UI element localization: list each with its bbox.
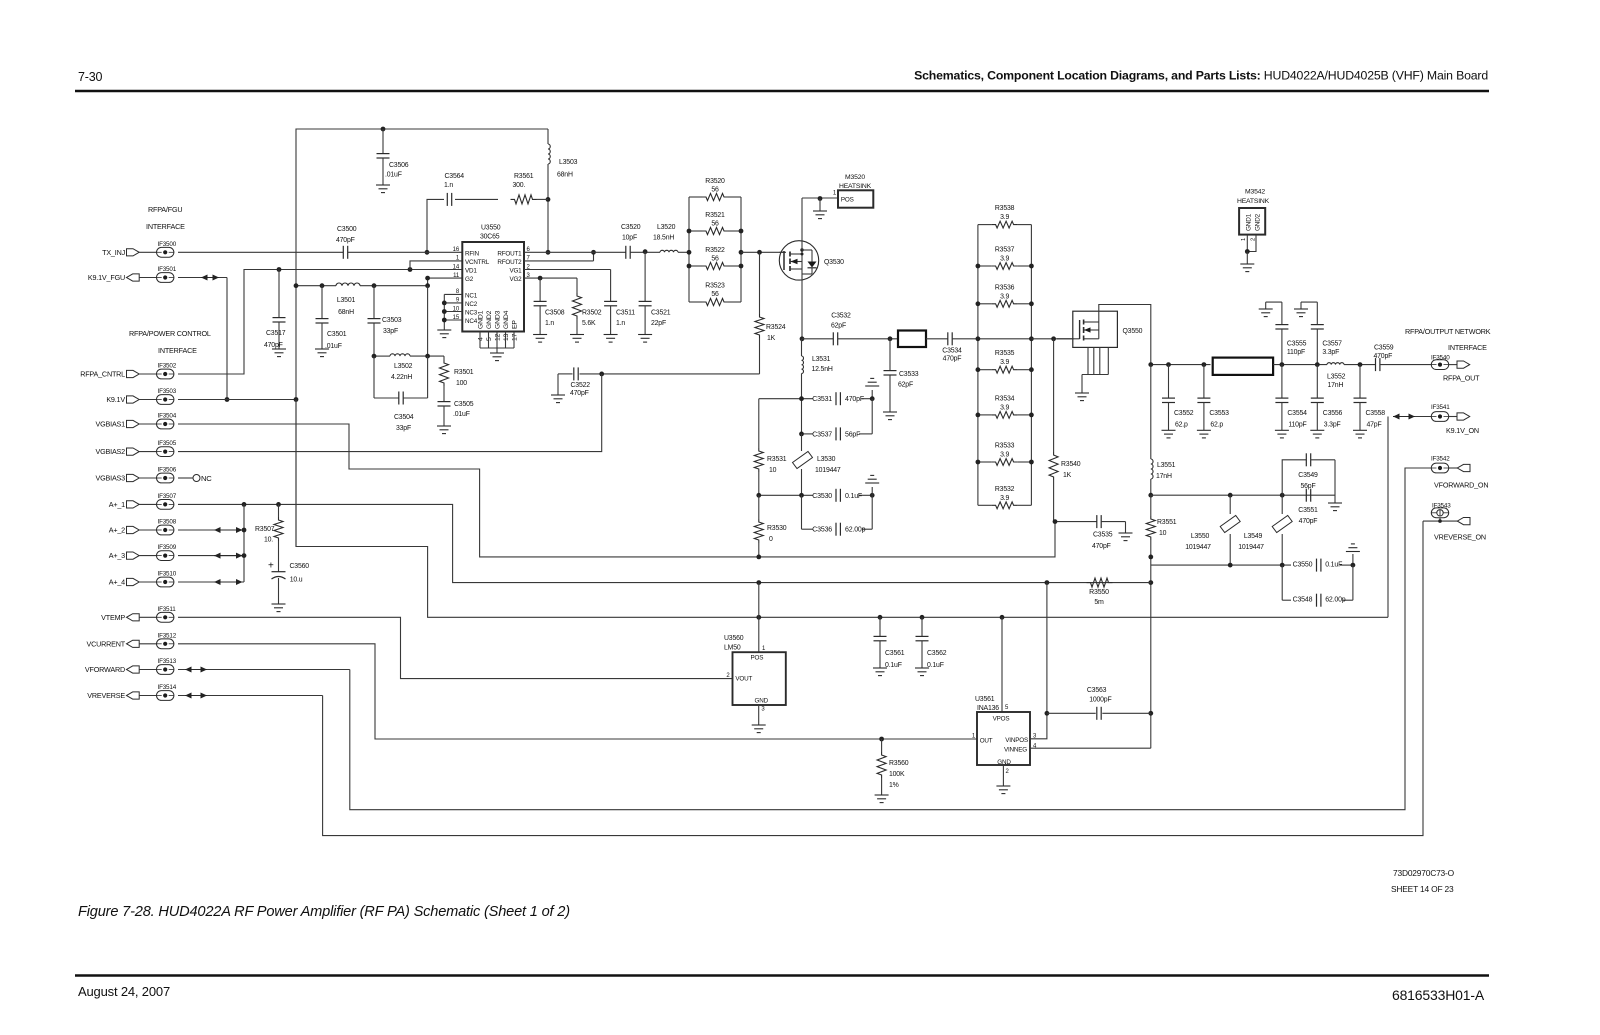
svg-text:10pF: 10pF [622,235,637,242]
svg-text:1K: 1K [767,335,776,342]
svg-text:.01uF: .01uF [453,411,470,418]
svg-text:11: 11 [453,273,460,279]
svg-text:GND2: GND2 [486,310,493,329]
svg-text:L3552: L3552 [1327,374,1346,381]
svg-text:R3540: R3540 [1061,461,1081,468]
svg-text:C3562: C3562 [927,650,947,657]
svg-text:0.1uF: 0.1uF [845,493,862,500]
svg-text:3.9: 3.9 [1000,293,1009,300]
svg-text:470pF: 470pF [264,342,283,349]
svg-text:OUT: OUT [980,738,993,745]
svg-text:1019447: 1019447 [1238,544,1264,551]
svg-text:RFIN: RFIN [465,250,480,257]
svg-text:R3532: R3532 [995,486,1015,493]
svg-text:C3564: C3564 [445,173,465,180]
svg-text:C3557: C3557 [1322,341,1342,348]
svg-text:VREVERSE_ON: VREVERSE_ON [1434,533,1486,542]
svg-text:22pF: 22pF [651,320,666,327]
svg-text:G2: G2 [465,276,474,283]
svg-text:U3550: U3550 [481,225,501,232]
svg-text:IF3502: IF3502 [158,363,177,370]
svg-text:0: 0 [769,536,773,543]
svg-text:17nH: 17nH [1328,382,1344,389]
svg-text:C3561: C3561 [885,650,905,657]
svg-text:VINNEG: VINNEG [1004,747,1027,754]
svg-text:R3523: R3523 [705,283,725,290]
svg-text:C3552: C3552 [1174,410,1194,417]
svg-text:C3503: C3503 [382,317,402,324]
svg-text:L3520: L3520 [657,224,676,231]
svg-text:INTERFACE: INTERFACE [146,222,185,231]
svg-text:10: 10 [1159,530,1167,537]
svg-text:L3503: L3503 [559,159,578,166]
svg-text:R3537: R3537 [995,247,1015,254]
svg-text:R3520: R3520 [705,178,725,185]
svg-text:C3560: C3560 [290,563,310,570]
svg-text:C3534: C3534 [942,348,962,355]
svg-text:7-30: 7-30 [78,70,103,84]
svg-text:1: 1 [1241,238,1247,241]
svg-text:Q3550: Q3550 [1123,328,1143,335]
svg-text:VREVERSE: VREVERSE [87,691,125,700]
svg-text:C3520: C3520 [621,224,641,231]
svg-text:GND: GND [997,759,1011,766]
svg-text:C3536: C3536 [812,527,832,534]
svg-text:C3531: C3531 [812,396,832,403]
svg-text:EP: EP [512,320,519,329]
svg-text:1019447: 1019447 [1185,544,1211,551]
svg-text:IF3510: IF3510 [158,571,177,578]
svg-text:RFPA_CNTRL: RFPA_CNTRL [80,370,125,379]
svg-text:R3507: R3507 [255,526,275,533]
svg-text:IF3509: IF3509 [158,544,177,551]
svg-text:NC1: NC1 [465,292,478,299]
svg-text:RFPA/OUTPUT NETWORK: RFPA/OUTPUT NETWORK [1405,327,1491,336]
svg-text:3.9: 3.9 [1000,495,1009,502]
svg-text:470pF: 470pF [845,396,864,403]
svg-text:R3551: R3551 [1157,519,1177,526]
svg-text:C3535: C3535 [1093,532,1113,539]
svg-text:R3522: R3522 [705,247,725,254]
svg-text:C3563: C3563 [1087,687,1107,694]
svg-text:C3558: C3558 [1366,410,1386,417]
svg-text:L3530: L3530 [817,456,836,463]
svg-text:0.1uF: 0.1uF [885,662,902,669]
svg-text:VD1: VD1 [465,268,477,275]
svg-text:IF3543: IF3543 [1432,503,1451,510]
svg-text:C3500: C3500 [337,226,357,233]
svg-text:NC: NC [201,474,212,483]
svg-text:IF3511: IF3511 [158,606,177,613]
svg-text:62.00p: 62.00p [845,527,866,534]
svg-text:R3501: R3501 [454,369,474,376]
svg-text:3.9: 3.9 [1000,452,1009,459]
svg-text:110pF: 110pF [1287,349,1305,356]
svg-text:68nH: 68nH [557,171,573,178]
svg-text:R3533: R3533 [995,443,1015,450]
svg-text:IF3500: IF3500 [158,241,177,248]
svg-text:NC2: NC2 [465,301,478,308]
svg-text:A+_3: A+_3 [109,551,125,560]
svg-text:C3551: C3551 [1298,507,1318,514]
svg-text:56: 56 [711,221,719,228]
svg-text:C3501: C3501 [327,331,347,338]
svg-text:14: 14 [453,264,460,270]
svg-text:VINPOS: VINPOS [1005,737,1028,744]
svg-text:C3508: C3508 [545,310,565,317]
svg-text:C3506: C3506 [389,162,409,169]
svg-text:C3555: C3555 [1287,341,1307,348]
svg-text:R3560: R3560 [889,760,909,767]
svg-text:R3550: R3550 [1089,589,1109,596]
svg-text:5.6K: 5.6K [582,320,596,327]
svg-text:3.3pF: 3.3pF [1322,349,1339,356]
svg-text:IF3513: IF3513 [158,658,177,665]
svg-text:470pF: 470pF [336,237,355,244]
svg-text:C3517: C3517 [266,330,286,337]
svg-text:.01uF: .01uF [385,172,402,179]
svg-text:HEATSINK: HEATSINK [839,183,872,190]
svg-text:C3521: C3521 [651,310,671,317]
svg-text:INTERFACE: INTERFACE [158,346,197,355]
svg-text:U3561: U3561 [975,696,995,703]
svg-text:30C65: 30C65 [480,233,500,240]
svg-text:VCNTRL: VCNTRL [465,259,490,266]
svg-text:U3560: U3560 [724,635,744,642]
svg-text:56: 56 [711,291,719,298]
svg-text:68nH: 68nH [338,309,354,316]
svg-text:C3556: C3556 [1323,410,1343,417]
svg-text:VOUT: VOUT [735,675,752,682]
svg-text:M3520: M3520 [845,174,865,181]
svg-text:73D02970C73-O: 73D02970C73-O [1393,868,1455,878]
svg-text:62pF: 62pF [898,381,913,388]
svg-text:M3542: M3542 [1245,189,1265,196]
svg-text:3.9: 3.9 [1000,256,1009,263]
svg-text:300.: 300. [513,182,526,189]
svg-text:1K: 1K [1063,472,1072,479]
svg-text:K9.1V_FGU: K9.1V_FGU [88,273,125,282]
svg-text:13: 13 [503,333,510,341]
svg-text:IF3514: IF3514 [158,684,177,691]
svg-text:3.3pF: 3.3pF [1324,421,1341,428]
svg-text:R3502: R3502 [582,310,602,317]
svg-text:C3549: C3549 [1298,472,1318,479]
svg-text:L3550: L3550 [1191,533,1210,540]
svg-text:RFOUT1: RFOUT1 [497,250,522,257]
svg-text:R3561: R3561 [514,173,534,180]
svg-text:POS: POS [841,197,854,204]
svg-text:IF3501: IF3501 [158,266,177,273]
svg-text:GND1: GND1 [478,310,485,329]
svg-text:August 24, 2007: August 24, 2007 [78,984,170,999]
svg-text:470pF: 470pF [943,355,962,362]
svg-text:C3554: C3554 [1287,410,1307,417]
svg-text:470pF: 470pF [570,390,589,397]
svg-text:.01uF: .01uF [325,343,342,350]
svg-text:Schematics, Component Location: Schematics, Component Location Diagrams,… [914,69,1488,83]
svg-text:IF3541: IF3541 [1431,404,1450,411]
svg-text:3.9: 3.9 [1000,404,1009,411]
svg-text:A+_2: A+_2 [109,526,125,535]
svg-text:NC4: NC4 [465,318,478,325]
svg-text:C3533: C3533 [899,371,919,378]
svg-text:4.22nH: 4.22nH [391,374,412,381]
svg-text:16: 16 [453,247,460,253]
svg-text:NC3: NC3 [465,310,478,317]
svg-text:100K: 100K [889,771,905,778]
svg-text:56: 56 [711,256,719,263]
svg-text:R3535: R3535 [995,350,1015,357]
svg-text:K9.1V: K9.1V [106,395,125,404]
svg-text:3.9: 3.9 [1000,214,1009,221]
svg-text:R3524: R3524 [766,324,786,331]
svg-text:RFPA/POWER CONTROL: RFPA/POWER CONTROL [129,329,211,338]
svg-text:4: 4 [478,337,485,341]
svg-text:6816533H01-A: 6816533H01-A [1392,987,1485,1003]
svg-text:R3521: R3521 [705,212,725,219]
svg-text:GND4: GND4 [503,310,510,329]
svg-text:VGBIAS3: VGBIAS3 [95,474,125,483]
svg-text:GND3: GND3 [495,310,502,329]
svg-text:56pF: 56pF [1301,483,1316,490]
svg-text:A+_1: A+_1 [109,500,125,509]
svg-text:470pF: 470pF [1299,518,1318,525]
svg-text:C3522: C3522 [571,382,591,389]
svg-text:C3504: C3504 [394,414,414,421]
svg-text:RFOUT2: RFOUT2 [497,259,522,266]
svg-text:A+_4: A+_4 [109,578,125,587]
svg-text:3.9: 3.9 [1000,359,1009,366]
svg-text:56: 56 [711,187,719,194]
svg-text:VFORWARD_ON: VFORWARD_ON [1434,480,1488,489]
svg-text:R3531: R3531 [767,456,787,463]
svg-text:L3531: L3531 [812,356,831,363]
svg-text:RFPA/FGU: RFPA/FGU [148,205,182,214]
svg-text:10.: 10. [264,537,273,544]
svg-text:INA136: INA136 [977,705,999,712]
svg-text:110pF: 110pF [1288,421,1306,428]
svg-text:C3505: C3505 [454,401,474,408]
svg-text:62.p: 62.p [1210,421,1223,428]
svg-text:18.5nH: 18.5nH [653,235,674,242]
svg-text:LM50: LM50 [724,644,741,651]
svg-text:17nH: 17nH [1156,473,1172,480]
svg-text:C3532: C3532 [831,313,851,320]
svg-text:C3537: C3537 [812,431,832,438]
svg-text:100: 100 [456,380,467,387]
svg-text:R3538: R3538 [995,205,1015,212]
svg-text:IF3506: IF3506 [158,467,177,474]
svg-text:TX_INJ: TX_INJ [102,248,125,257]
svg-text:L3549: L3549 [1244,533,1263,540]
svg-text:1000pF: 1000pF [1089,697,1111,704]
svg-text:IF3507: IF3507 [158,493,177,500]
svg-text:1.n: 1.n [545,320,554,327]
svg-text:GND1: GND1 [1246,213,1253,231]
svg-text:RFPA_OUT: RFPA_OUT [1443,373,1480,382]
svg-text:INTERFACE: INTERFACE [1448,343,1487,352]
svg-text:VPOS: VPOS [993,716,1010,723]
svg-text:12: 12 [495,333,502,341]
svg-text:470pF: 470pF [1092,543,1111,550]
svg-text:IF3503: IF3503 [158,388,177,395]
svg-text:R3534: R3534 [995,395,1015,402]
svg-text:12.5nH: 12.5nH [812,366,833,373]
svg-text:+: + [268,561,274,572]
svg-text:1019447: 1019447 [815,467,841,474]
svg-text:VCURRENT: VCURRENT [87,639,126,648]
svg-text:VG1: VG1 [509,268,522,275]
svg-text:L3502: L3502 [394,363,413,370]
svg-text:IF3504: IF3504 [158,413,177,420]
svg-text:HEATSINK: HEATSINK [1237,198,1270,205]
svg-text:L3551: L3551 [1157,462,1176,469]
svg-text:1%: 1% [889,782,899,789]
svg-text:IF3505: IF3505 [158,440,177,447]
svg-text:C3511: C3511 [616,310,635,317]
svg-text:SHEET 14 OF 23: SHEET 14 OF 23 [1391,884,1454,894]
svg-text:GND: GND [755,697,769,704]
svg-text:VG2: VG2 [509,276,522,283]
svg-text:IF3512: IF3512 [158,632,177,639]
svg-text:POS: POS [751,655,764,662]
svg-text:56pF: 56pF [845,431,860,438]
svg-text:R3530: R3530 [767,525,787,532]
svg-text:VTEMP: VTEMP [101,613,125,622]
svg-text:Q3530: Q3530 [824,259,844,266]
svg-text:0.1uF: 0.1uF [1325,561,1342,568]
svg-text:10.u: 10.u [290,577,303,584]
svg-text:62pF: 62pF [831,322,846,329]
svg-text:GND2: GND2 [1255,213,1262,231]
svg-text:K9.1V_ON: K9.1V_ON [1446,426,1479,435]
svg-text:5: 5 [486,337,493,341]
svg-text:C3559: C3559 [1374,345,1394,352]
svg-text:33pF: 33pF [396,425,411,432]
svg-text:R3536: R3536 [995,284,1015,291]
svg-text:17: 17 [512,333,519,341]
svg-text:10: 10 [769,467,777,474]
svg-text:C3553: C3553 [1209,410,1229,417]
svg-text:33pF: 33pF [383,328,398,335]
svg-text:Figure 7-28. HUD4022A RF Power: Figure 7-28. HUD4022A RF Power Amplifier… [78,904,570,920]
svg-text:VFORWARD: VFORWARD [85,665,125,674]
svg-text:47pF: 47pF [1367,421,1382,428]
svg-text:0.1uF: 0.1uF [927,662,944,669]
svg-text:L3501: L3501 [337,297,356,304]
svg-text:VGBIAS1: VGBIAS1 [95,420,125,429]
svg-text:VGBIAS2: VGBIAS2 [95,447,125,456]
svg-text:IF3542: IF3542 [1431,456,1450,463]
svg-text:C3548: C3548 [1293,596,1313,603]
svg-text:IF3508: IF3508 [158,519,177,526]
svg-text:C3530: C3530 [812,493,832,500]
svg-text:1.n: 1.n [444,182,453,189]
svg-text:470pF: 470pF [1374,353,1393,360]
svg-text:62.p: 62.p [1175,421,1188,428]
svg-text:IF3540: IF3540 [1431,355,1450,362]
svg-text:62.00p: 62.00p [1325,596,1346,603]
svg-text:5m: 5m [1094,599,1104,606]
svg-text:1.n: 1.n [616,320,625,327]
svg-text:C3550: C3550 [1293,561,1313,568]
